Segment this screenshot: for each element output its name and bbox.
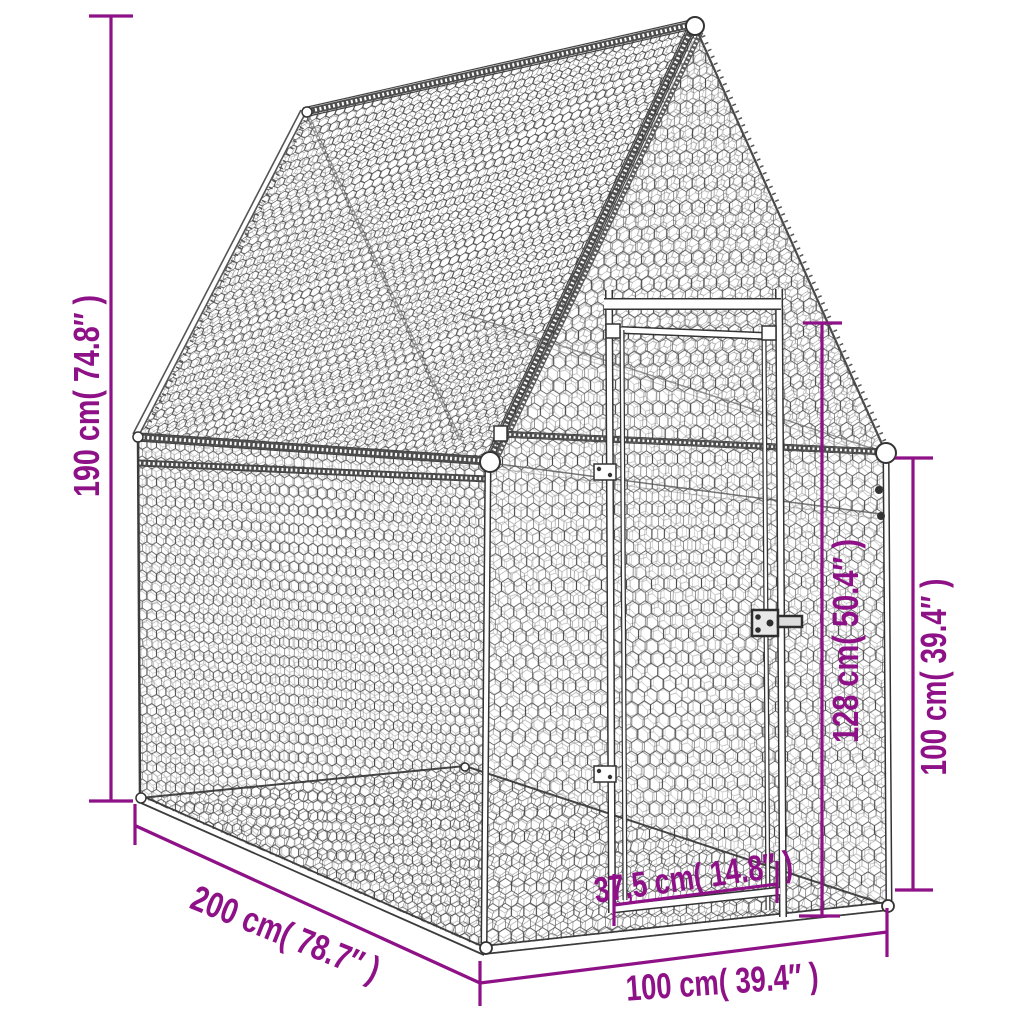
svg-text:190 cm( 74.8″ ): 190 cm( 74.8″ ) [66, 295, 107, 497]
svg-text:128 cm( 50.4″ ): 128 cm( 50.4″ ) [825, 539, 866, 743]
svg-text:100 cm( 39.4″ ): 100 cm( 39.4″ ) [913, 579, 954, 776]
